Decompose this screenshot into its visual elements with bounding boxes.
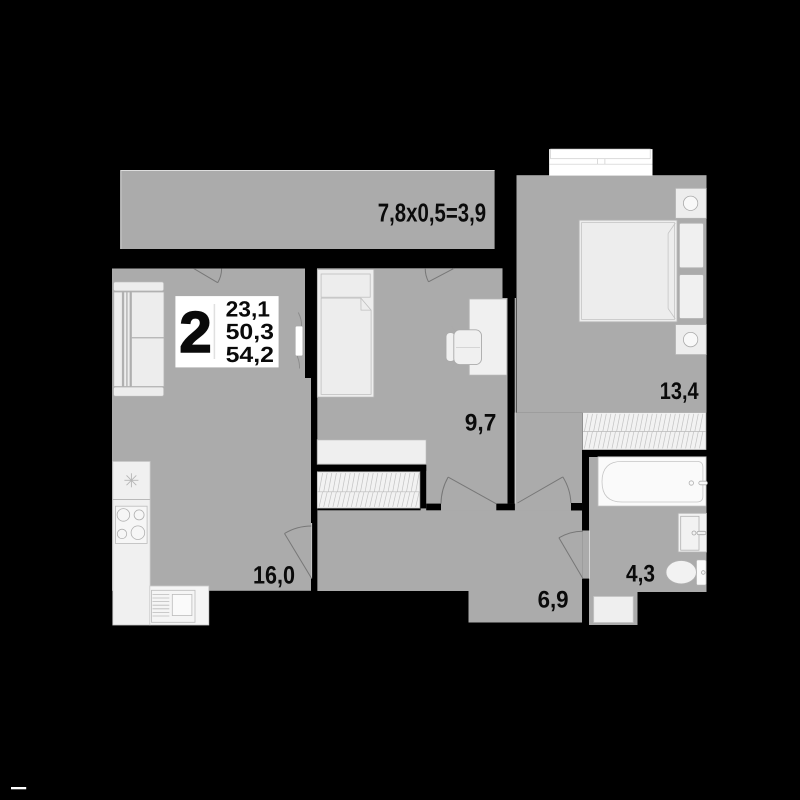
svg-text:54,2: 54,2 (226, 342, 274, 367)
svg-text:6,9: 6,9 (538, 587, 569, 614)
svg-text:50,3: 50,3 (226, 319, 274, 344)
svg-text:23,1: 23,1 (226, 296, 270, 321)
svg-text:9,7: 9,7 (465, 409, 497, 436)
svg-text:13,4: 13,4 (660, 378, 699, 405)
svg-text:7,8x0,5=3,9: 7,8x0,5=3,9 (378, 198, 486, 228)
svg-text:2: 2 (179, 300, 211, 365)
svg-text:4,3: 4,3 (626, 561, 655, 588)
svg-text:16,0: 16,0 (253, 562, 295, 590)
